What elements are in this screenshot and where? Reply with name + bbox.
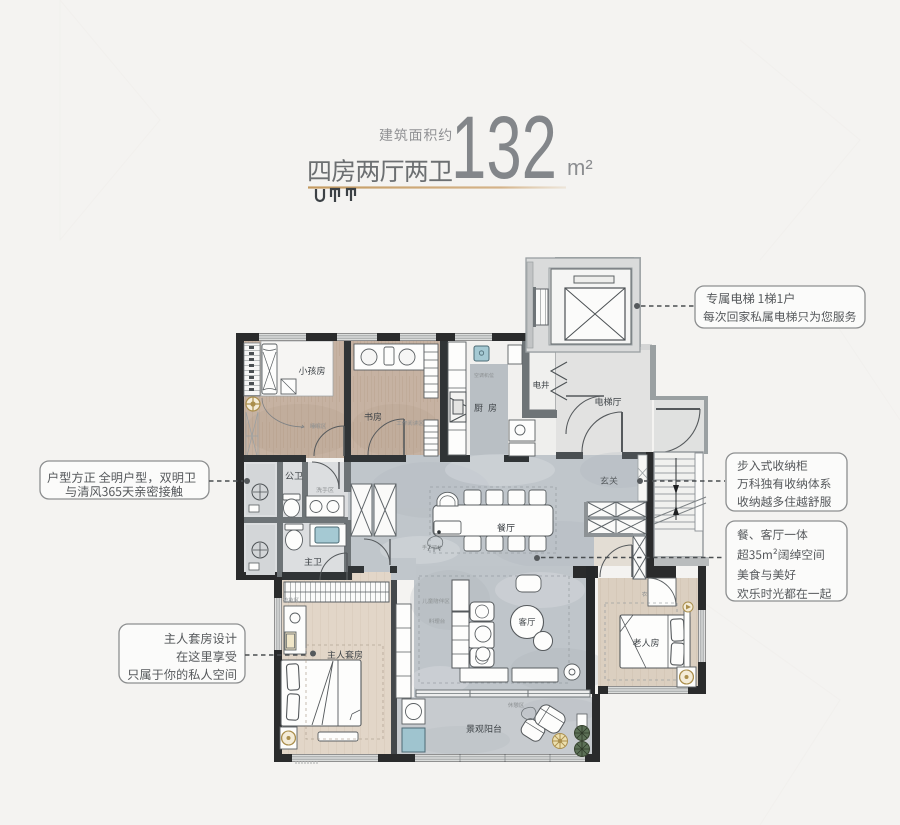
svg-text:132: 132 xyxy=(451,99,557,198)
svg-text:m²: m² xyxy=(567,155,593,180)
